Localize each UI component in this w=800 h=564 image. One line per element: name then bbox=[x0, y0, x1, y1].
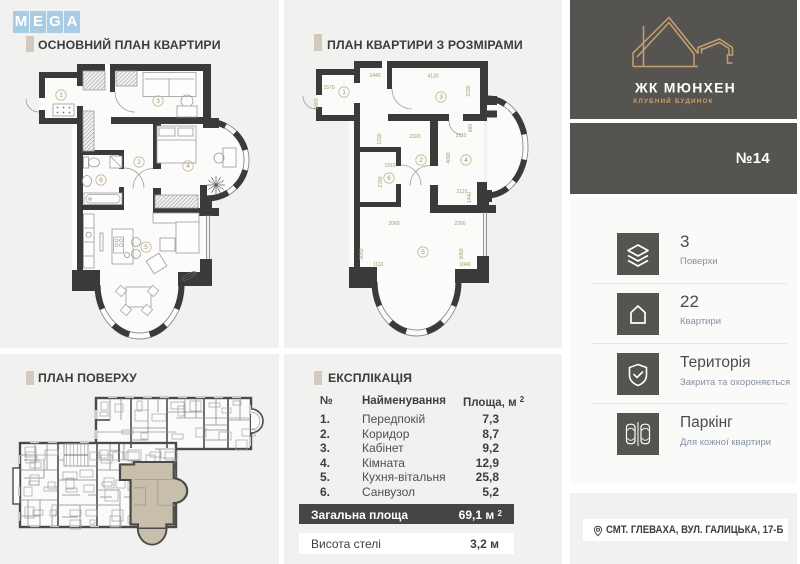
svg-text:4090: 4090 bbox=[446, 152, 452, 163]
svg-text:1570: 1570 bbox=[323, 85, 334, 91]
svg-text:5: 5 bbox=[421, 249, 425, 256]
svg-text:1910: 1910 bbox=[384, 163, 395, 169]
svg-text:5: 5 bbox=[144, 244, 148, 251]
svg-text:2320: 2320 bbox=[409, 134, 420, 140]
svg-text:1230: 1230 bbox=[377, 133, 383, 144]
svg-text:4130: 4130 bbox=[427, 74, 438, 80]
svg-text:КЛУБНИЙ БУДИНОК: КЛУБНИЙ БУДИНОК bbox=[633, 96, 713, 105]
svg-text:3: 3 bbox=[156, 98, 160, 105]
svg-text:2260: 2260 bbox=[454, 221, 465, 227]
svg-text:3050: 3050 bbox=[459, 248, 465, 259]
svg-text:1: 1 bbox=[342, 89, 346, 96]
svg-text:1110: 1110 bbox=[373, 262, 384, 268]
svg-text:660: 660 bbox=[468, 124, 474, 133]
svg-text:1440: 1440 bbox=[369, 73, 380, 79]
svg-text:2230: 2230 bbox=[466, 85, 472, 96]
svg-text:1040: 1040 bbox=[459, 262, 470, 268]
svg-text:2110: 2110 bbox=[457, 189, 468, 195]
svg-text:3: 3 bbox=[439, 94, 443, 101]
svg-text:2: 2 bbox=[137, 159, 141, 166]
svg-text:2110: 2110 bbox=[456, 133, 467, 139]
svg-text:6: 6 bbox=[387, 175, 391, 182]
svg-text:6: 6 bbox=[99, 177, 103, 184]
svg-text:2060: 2060 bbox=[388, 221, 399, 227]
svg-text:2: 2 bbox=[419, 157, 423, 164]
svg-text:3050: 3050 bbox=[359, 248, 365, 259]
svg-text:1860: 1860 bbox=[314, 98, 320, 109]
svg-text:1: 1 bbox=[59, 92, 63, 99]
svg-text:4: 4 bbox=[186, 163, 190, 170]
svg-text:ЖК МЮНХЕН: ЖК МЮНХЕН bbox=[634, 80, 736, 96]
svg-text:4: 4 bbox=[464, 157, 468, 164]
svg-text:1440: 1440 bbox=[467, 192, 473, 203]
svg-text:2780: 2780 bbox=[378, 176, 384, 187]
